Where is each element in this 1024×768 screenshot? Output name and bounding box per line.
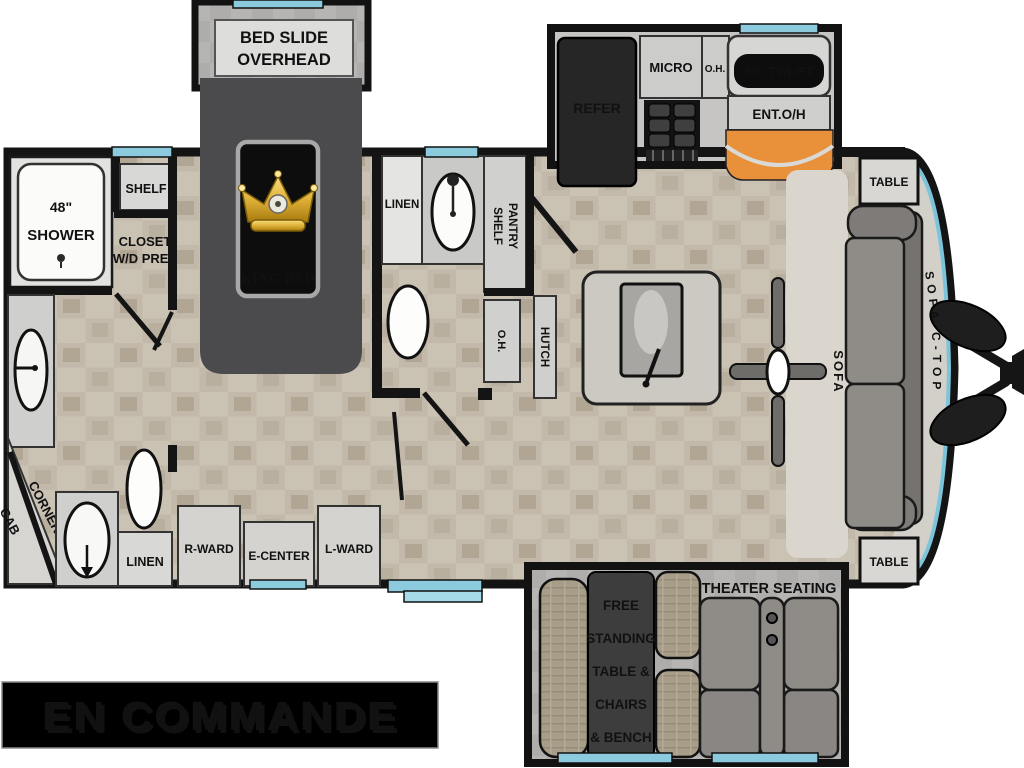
oh-label-group: O.H.	[495, 330, 507, 353]
kitchen-island	[583, 272, 720, 404]
pantry-label-line1: PANTRY	[506, 203, 518, 249]
entry-steps	[388, 580, 482, 602]
table-rear-label: TABLE	[869, 555, 908, 569]
wall	[832, 147, 905, 157]
window	[558, 753, 672, 763]
bed-slide-label-line1: BED SLIDE	[240, 29, 328, 47]
shelf-label: SHELF	[126, 182, 167, 196]
faucet-icon	[447, 174, 459, 186]
banner-text: EN COMMANDE	[42, 693, 398, 739]
king-bed-label: KING BED	[241, 271, 316, 287]
linen-label: LINEN	[385, 199, 420, 211]
faucet-icon	[32, 365, 38, 371]
dinette-label-line3: TABLE &	[592, 664, 650, 679]
wall	[372, 148, 382, 396]
wall	[526, 148, 534, 294]
wall	[8, 286, 112, 295]
status-banner: EN COMMANDE EN COMMANDE	[2, 682, 438, 748]
sofa-label-group: SOFA	[831, 350, 846, 393]
oh-label: O.H.	[495, 330, 507, 353]
sofa-label: SOFA	[831, 350, 846, 393]
dinette-chair	[656, 572, 700, 658]
theater-seat-left	[700, 690, 760, 757]
closet-label-line1: CLOSET	[119, 234, 172, 249]
window	[233, 0, 323, 8]
dinette-label-line1: FREE	[603, 598, 639, 613]
dinette-label-line5: & BENCH	[590, 730, 652, 745]
theater-seat-left-back	[700, 598, 760, 690]
floorplan-drawing: 48" SHOWER SHELF CLOSET W/D PREP CORNER …	[0, 0, 1024, 768]
window	[425, 147, 478, 157]
wall	[112, 157, 120, 212]
ent-oh-label: ENT.O/H	[752, 107, 805, 122]
micro-label: MICRO	[649, 60, 692, 75]
e-center-label: E-CENTER	[248, 549, 310, 563]
sofa	[846, 206, 922, 530]
hutch-label: HUTCH	[538, 327, 550, 367]
hitch-coupler-icon	[1000, 362, 1014, 384]
table-front-label: TABLE	[869, 175, 908, 189]
faucet-icon	[643, 381, 650, 388]
wall	[114, 210, 172, 218]
pantry-cabinet	[484, 156, 526, 292]
window	[712, 753, 818, 763]
refer-label: REFER	[573, 100, 620, 116]
dinette-slide: FREE STANDING TABLE & CHAIRS & BENCH THE…	[528, 566, 845, 763]
wall	[168, 445, 177, 472]
closet-label-line2: W/D PREP	[113, 251, 178, 266]
island-sink-basin	[634, 290, 668, 354]
shower-size-label: 48"	[50, 199, 72, 215]
l-ward-label: L-WARD	[325, 542, 373, 556]
bed-slide: BED SLIDE OVERHEAD KING BED	[195, 0, 368, 374]
wall	[168, 148, 177, 310]
r-ward-label: R-WARD	[184, 542, 234, 556]
shower-label: SHOWER	[27, 227, 95, 244]
hutch-label-group: HUTCH	[538, 327, 550, 367]
theater-seating	[700, 598, 838, 757]
linen-label: LINEN	[126, 555, 164, 569]
window	[112, 147, 172, 157]
theater-seat-right	[784, 690, 838, 757]
dinette-label-line2: STANDING	[586, 631, 656, 646]
pantry-label-line2: SHELF	[491, 207, 503, 245]
wall	[372, 388, 420, 398]
window	[250, 580, 306, 589]
window	[740, 24, 818, 33]
cup-holder-icon	[767, 635, 777, 645]
kitchen-oh-label: O.H.	[705, 64, 726, 75]
theater-seating-label: THEATER SEATING	[702, 581, 837, 597]
toilet	[127, 450, 161, 528]
bathroom-sink	[15, 330, 47, 410]
wall	[484, 288, 534, 296]
floorplan-page: 48" SHOWER SHELF CLOSET W/D PREP CORNER …	[0, 0, 1024, 768]
dinette-label-line4: CHAIRS	[595, 697, 647, 712]
cup-holder-icon	[767, 613, 777, 623]
toilet	[388, 286, 428, 358]
dinette-bench	[540, 579, 588, 757]
stove-icon	[644, 100, 700, 161]
wall	[478, 388, 492, 400]
hitch-jack-icon	[1012, 349, 1024, 395]
dinette-chair	[656, 670, 700, 757]
faucet-icon	[450, 211, 456, 217]
bed-slide-label-line2: OVERHEAD	[237, 51, 331, 69]
tv-label: 50" TV/LIFT	[744, 65, 813, 79]
theater-seat-right-back	[784, 598, 838, 690]
